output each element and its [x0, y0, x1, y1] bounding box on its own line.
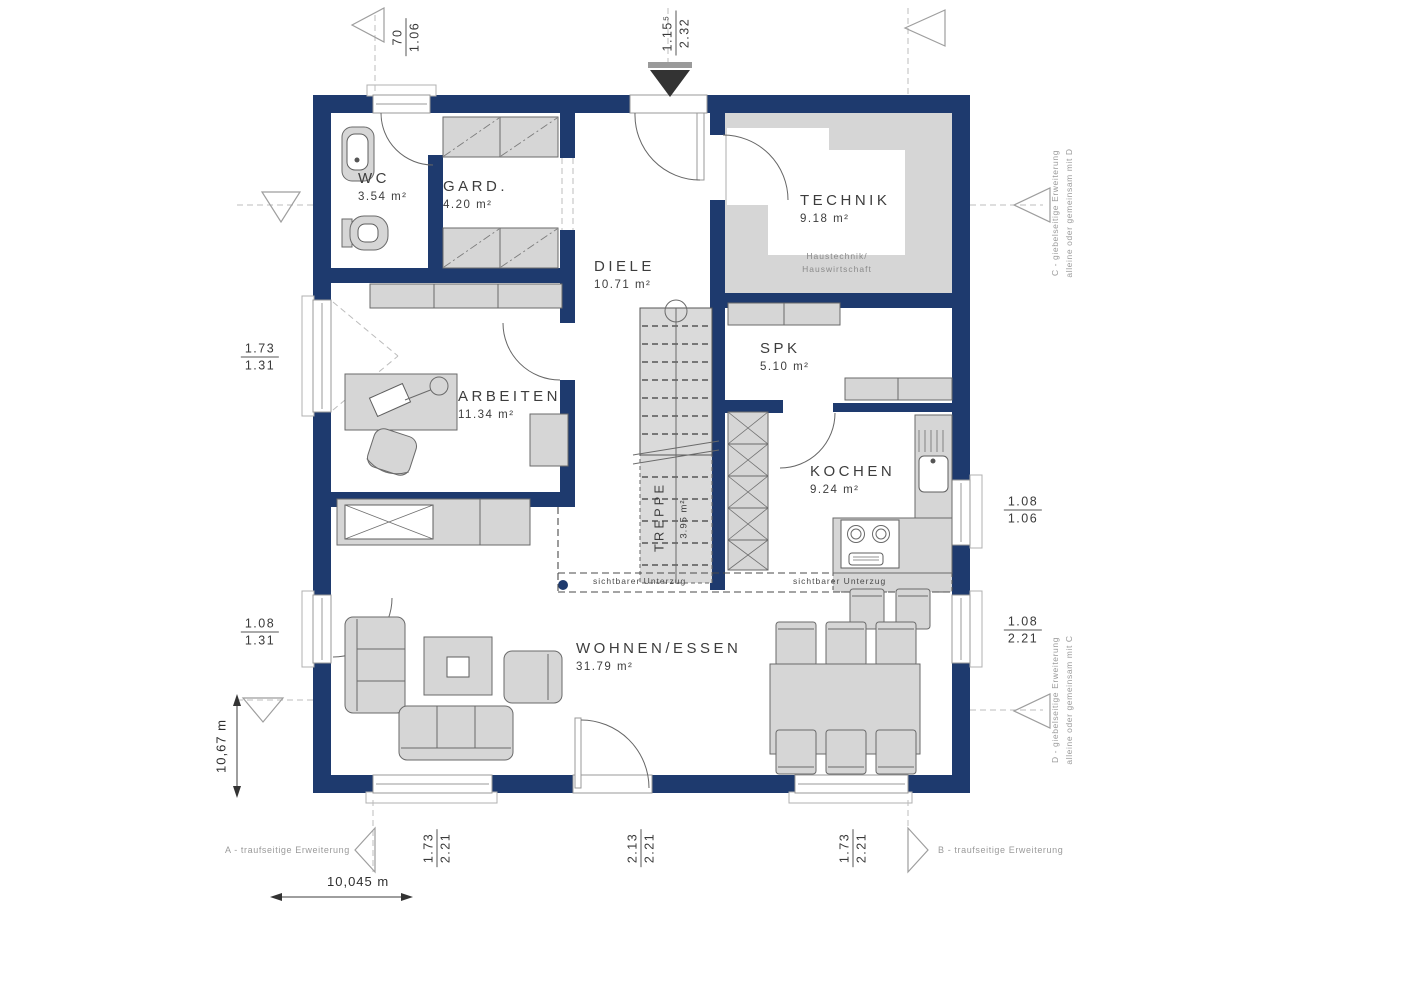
- entrance-marker: [648, 62, 692, 97]
- room-area: 10.71 m²: [594, 279, 655, 291]
- window-wc-top: [367, 85, 436, 113]
- total-width-label: 10,045 m: [327, 874, 389, 889]
- unterzug-label-right: sichtbarer Unterzug: [793, 576, 886, 586]
- room-name: SPK: [760, 340, 810, 357]
- window-wohnen-right: [952, 591, 982, 667]
- room-label-technik: TECHNIK 9.18 m²: [800, 192, 890, 225]
- dimension-top-left: 70 1.06: [391, 18, 422, 56]
- triangle-top-right: [905, 10, 945, 46]
- room-label-treppe: TREPPE: [652, 482, 667, 552]
- column: [558, 580, 568, 590]
- furniture-sideboard: [337, 499, 530, 545]
- window-kochen-right: [952, 475, 982, 548]
- room-name: WC: [358, 170, 408, 187]
- wc-door-arc: [381, 113, 433, 165]
- room-area: 11.34 m²: [458, 409, 561, 421]
- room-area: 9.18 m²: [800, 213, 890, 225]
- room-label-wohnen: WOHNEN/ESSEN 31.79 m²: [576, 640, 741, 673]
- room-area: 31.79 m²: [576, 661, 741, 673]
- dimension-bottom-mid: 2.13 2.21: [626, 829, 657, 867]
- triangle-top-left: [352, 8, 384, 42]
- unterzug-label-left: sichtbarer Unterzug: [593, 576, 686, 586]
- room-area: 3.54 m²: [358, 191, 408, 203]
- window-wohnen-left: [302, 591, 331, 667]
- extension-note-c: C - giebelseitige Erweiterung alleine od…: [1048, 148, 1076, 277]
- room-label-kochen: KOCHEN 9.24 m²: [810, 463, 895, 496]
- extension-note-b: B - traufseitige Erweiterung: [938, 845, 1063, 855]
- room-label-arbeiten: ARBEITEN 11.34 m²: [458, 388, 561, 421]
- entrance-door: [630, 95, 707, 180]
- floor-plan-drawing: [0, 0, 1414, 1000]
- window-wohnen-bottom-left: [366, 775, 497, 803]
- triangle-bottom-left: [355, 828, 375, 872]
- room-label-spk: SPK 5.10 m²: [760, 340, 810, 373]
- kochen-door-arc: [780, 413, 835, 468]
- triangle-bottom-right: [908, 828, 928, 872]
- dimension-left-upper: 1.73 1.31: [241, 342, 279, 373]
- dimension-bottom-left: 1.73 2.21: [422, 829, 453, 867]
- room-area: 9.24 m²: [810, 484, 895, 496]
- room-name: DIELE: [594, 258, 655, 275]
- triangle-left: [262, 192, 300, 222]
- furniture-wohnen: [345, 589, 930, 774]
- room-name: ARBEITEN: [458, 388, 561, 405]
- room-area-treppe: 3.95 m²: [679, 499, 690, 538]
- room-name: TECHNIK: [800, 192, 890, 209]
- dimension-right-upper: 1.08 1.06: [1004, 495, 1042, 526]
- room-name: GARD.: [443, 178, 508, 195]
- triangle-right-lower: [1014, 694, 1050, 728]
- total-height-label: 10,67 m: [214, 719, 229, 773]
- window-arbeiten-left: [302, 296, 331, 416]
- room-label-wc: WC 3.54 m²: [358, 170, 408, 203]
- extension-note-a: A - traufseitige Erweiterung: [225, 845, 350, 855]
- dimension-right-lower: 1.08 2.21: [1004, 615, 1042, 646]
- terrace-door: [573, 718, 652, 793]
- room-label-gard: GARD. 4.20 m²: [443, 178, 508, 211]
- room-area: 5.10 m²: [760, 361, 810, 373]
- room-label-diele: DIELE 10.71 m²: [594, 258, 655, 291]
- room-area: 4.20 m²: [443, 199, 508, 211]
- room-name: WOHNEN/ESSEN: [576, 640, 741, 657]
- dimension-bottom-right: 1.73 2.21: [838, 829, 869, 867]
- window-wohnen-bottom-right: [789, 775, 912, 803]
- dimension-top-mid: 1.15⁵ 2.32: [661, 10, 692, 55]
- floor-plan: WC 3.54 m² GARD. 4.20 m² DIELE 10.71 m² …: [0, 0, 1414, 1000]
- room-name: KOCHEN: [810, 463, 895, 480]
- gard-diele-passage: [562, 158, 573, 230]
- furniture-arbeiten: [345, 284, 568, 479]
- extension-note-d: D - giebelseitige Erweiterung alleine od…: [1048, 635, 1076, 764]
- technik-caption: Haustechnik/ Hauswirtschaft: [772, 250, 902, 276]
- staircase: [633, 300, 719, 583]
- dimension-left-lower: 1.08 1.31: [241, 617, 279, 648]
- arbeiten-door-arc: [503, 323, 560, 380]
- triangle-height: [243, 698, 283, 722]
